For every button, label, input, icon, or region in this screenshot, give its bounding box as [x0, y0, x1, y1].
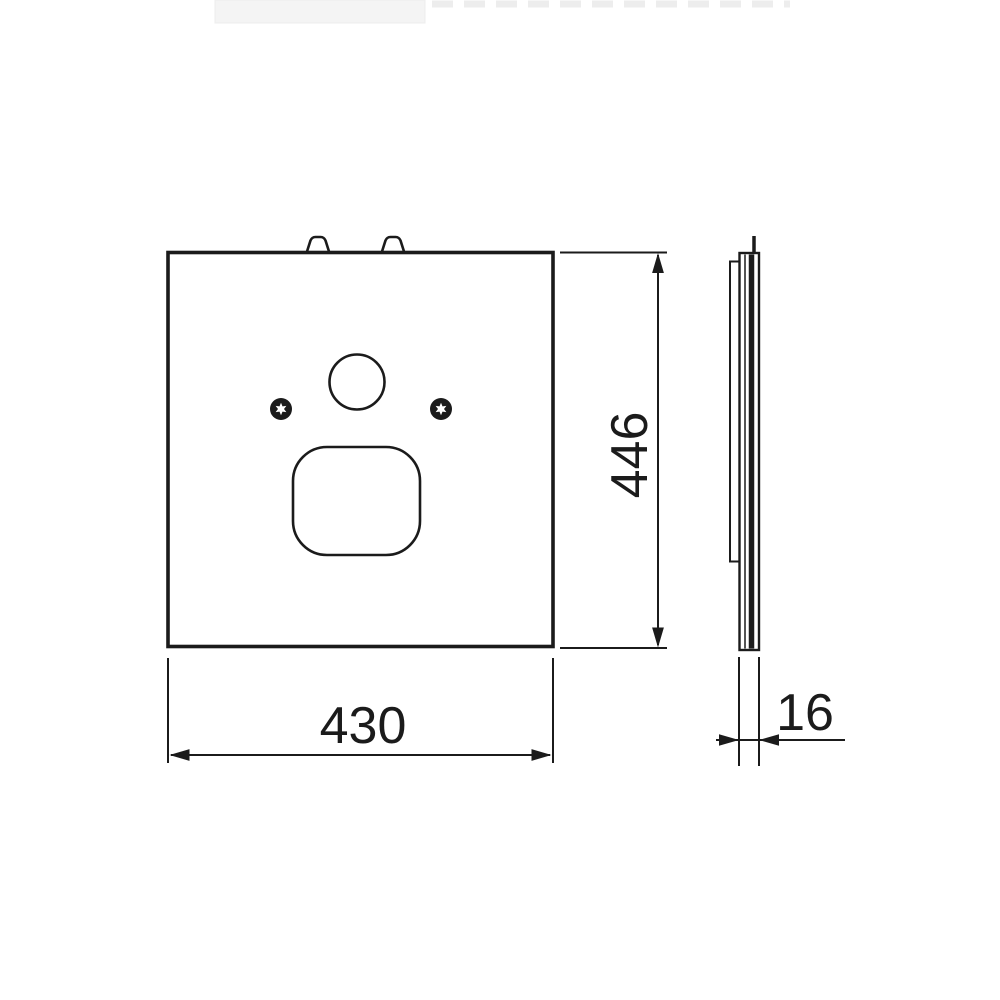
mat-layer — [730, 262, 739, 562]
height-dimension: 446 — [560, 253, 667, 649]
height-dimension-label: 446 — [601, 412, 659, 499]
side-view — [730, 236, 759, 650]
arrow-down-icon — [652, 628, 664, 648]
mounting-tab-right — [382, 237, 404, 252]
front-view — [168, 237, 553, 647]
screw-hole-left — [270, 398, 292, 420]
technical-drawing: 446 430 16 — [0, 0, 1000, 1000]
front-panel-outline — [168, 253, 553, 647]
top-crop-block — [215, 0, 425, 23]
thickness-dimension-label: 16 — [776, 684, 834, 742]
thickness-dimension: 16 — [716, 657, 845, 766]
top-crop-artifact — [215, 0, 790, 23]
width-dimension: 430 — [168, 658, 553, 763]
drawing-canvas: 446 430 16 — [0, 0, 1000, 1000]
mounting-tab-left — [307, 237, 329, 252]
arrow-left-icon — [170, 749, 190, 761]
screw-hole-right — [430, 398, 452, 420]
arrow-right-icon — [532, 749, 552, 761]
arrow-right-icon — [719, 734, 739, 746]
width-dimension-label: 430 — [320, 697, 407, 755]
arrow-up-icon — [652, 253, 664, 273]
